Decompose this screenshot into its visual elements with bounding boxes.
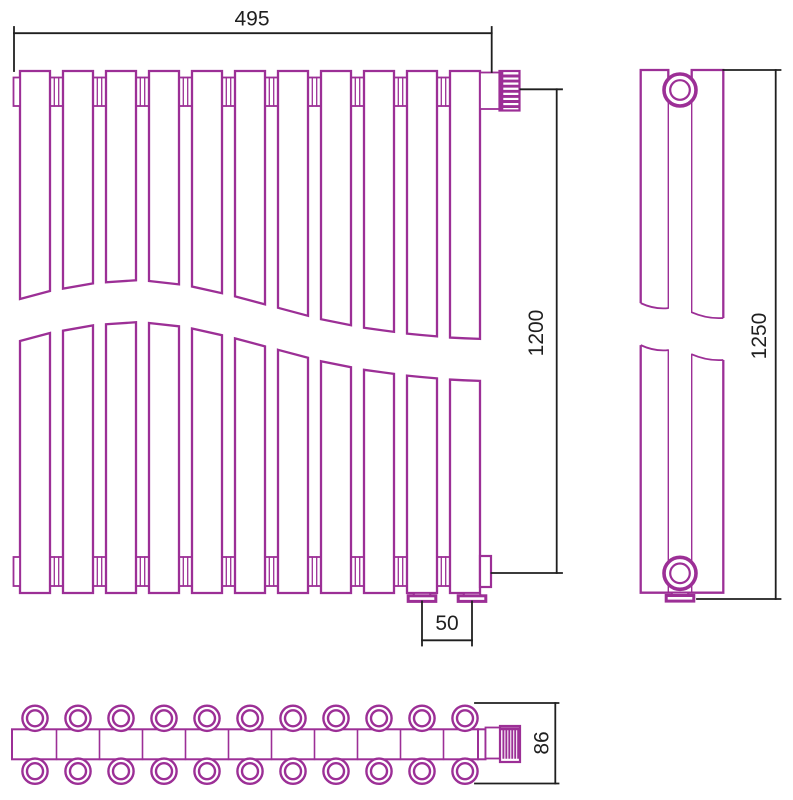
- drawing-canvas: 495120050125086: [0, 0, 793, 800]
- dim-connection-height-label: 1200: [525, 310, 548, 357]
- dim-overall-height-label: 1250: [748, 313, 771, 360]
- radiator-technical-drawing: 495120050125086: [0, 0, 793, 800]
- dim-outlet-spacing-label: 50: [435, 612, 458, 635]
- side-view: [641, 70, 724, 601]
- dim-width-label: 495: [234, 8, 269, 31]
- front-view: [14, 71, 520, 601]
- dim-depth-label: 86: [531, 731, 554, 754]
- bottom-view: [12, 706, 520, 784]
